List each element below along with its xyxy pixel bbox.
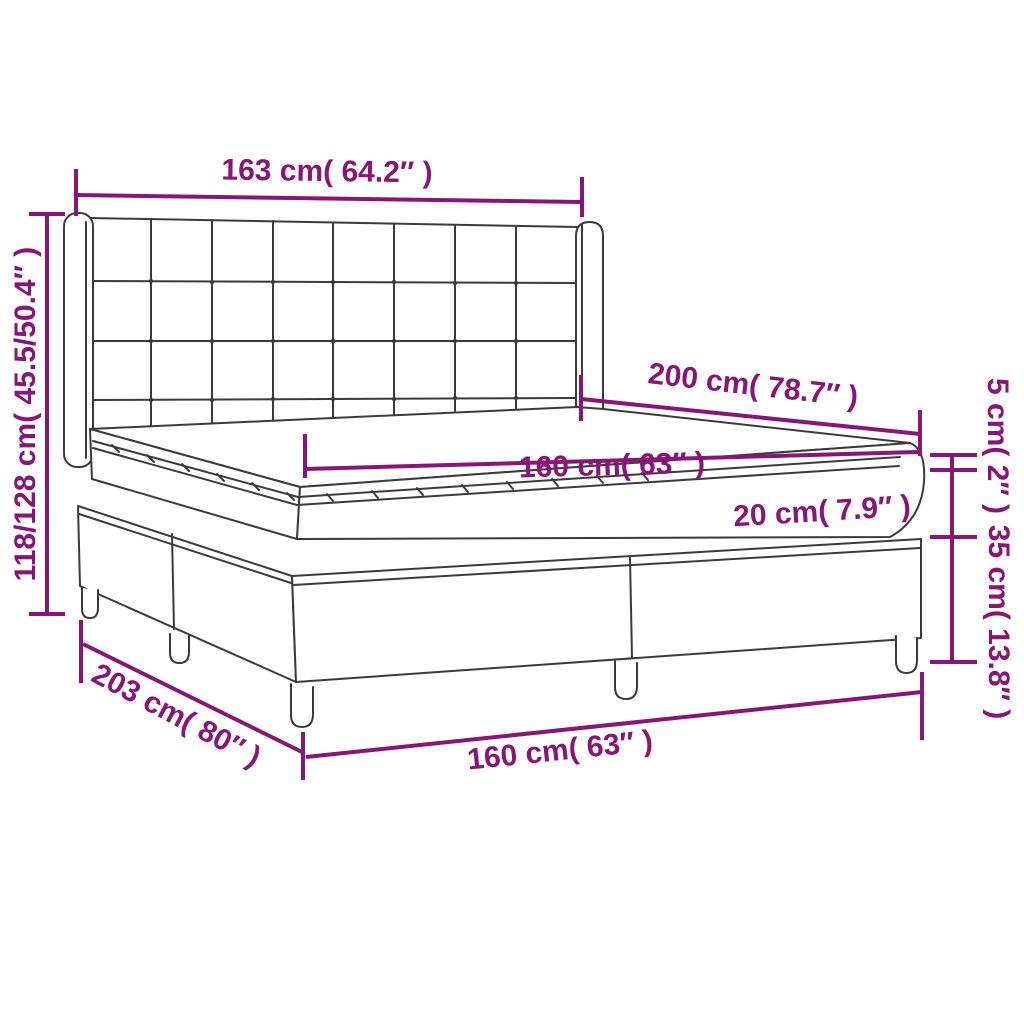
leg-3 <box>291 684 313 727</box>
leg-1 <box>82 588 98 618</box>
headboard-panel <box>90 218 577 426</box>
dim-right-height-scale <box>930 455 977 662</box>
label-headboard-width: 163 cm( 64.2″ ) <box>221 154 433 191</box>
label-mattress-width: 160 cm( 63″ ) <box>519 447 706 486</box>
label-overall-height: 118/128 cm( 45.5/50.4″ ) <box>9 247 43 582</box>
dim-base-width-line <box>303 672 922 780</box>
label-base-height: 35 cm( 13.8″ ) <box>981 525 1015 719</box>
dimension-diagram: 163 cm( 64.2″ ) 118/128 cm( 45.5/50.4″ )… <box>0 0 1024 1024</box>
leg-2 <box>170 634 189 663</box>
leg-5 <box>896 636 917 673</box>
label-topper-thickness: 5 cm( 2″ ) <box>980 378 1014 514</box>
leg-4 <box>615 661 637 699</box>
bed-drawing <box>64 213 924 727</box>
headboard-left-wing <box>64 213 93 467</box>
